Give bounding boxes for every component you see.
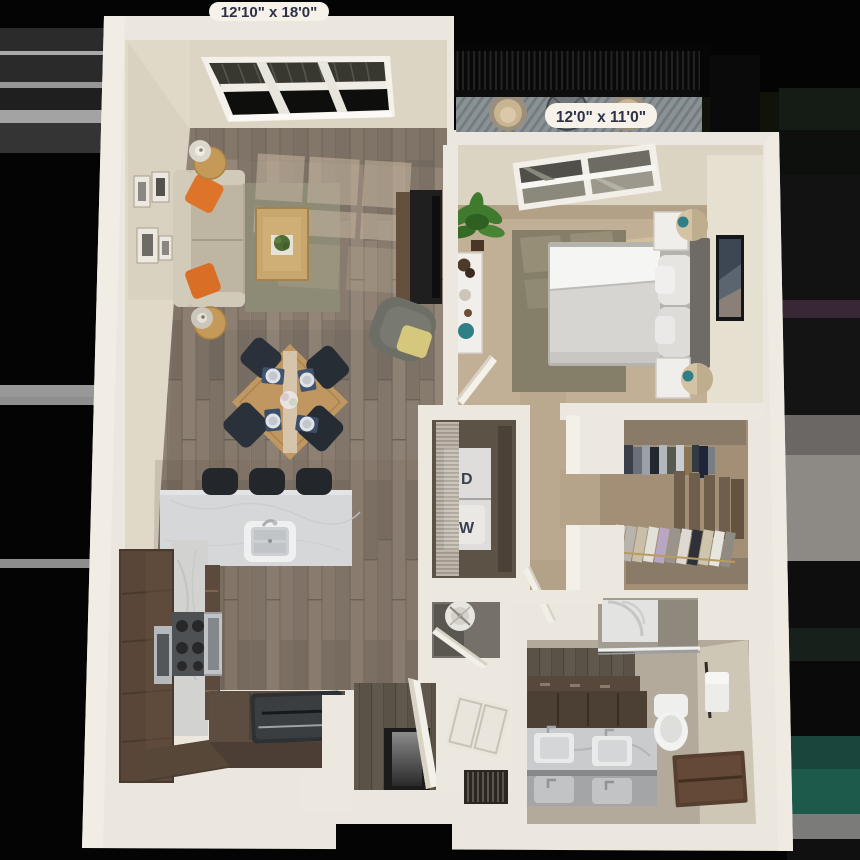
svg-text:12'10" x 18'0": 12'10" x 18'0" [221,4,317,21]
svg-text:D: D [461,471,473,488]
svg-text:W: W [459,520,475,537]
svg-text:12'0" x 11'0": 12'0" x 11'0" [556,109,646,126]
